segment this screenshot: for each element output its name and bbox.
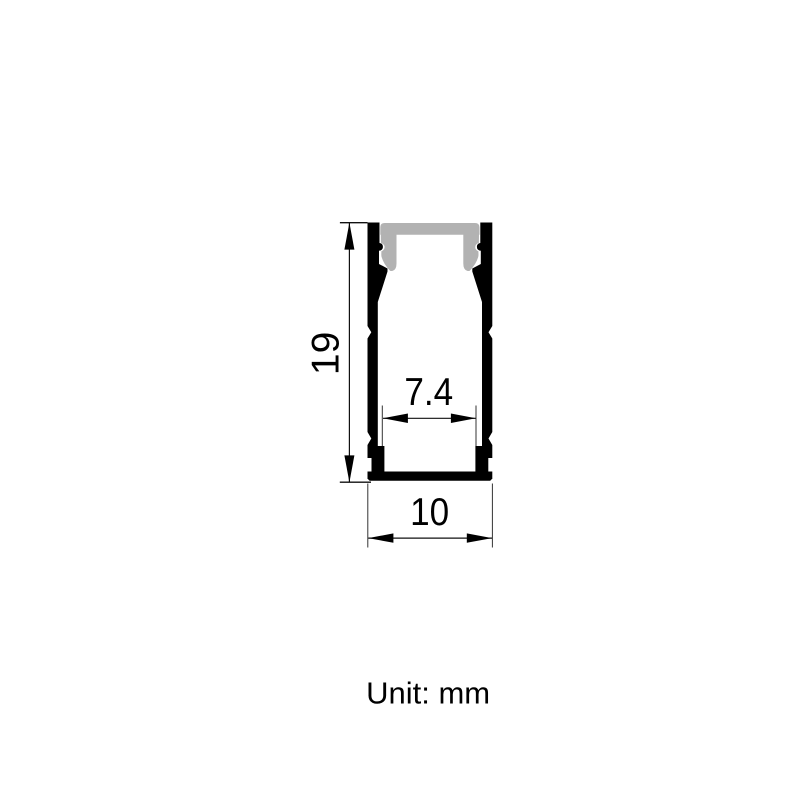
svg-text:Unit: mm: Unit: mm — [366, 676, 490, 711]
svg-text:7.4: 7.4 — [404, 369, 453, 413]
svg-text:19: 19 — [305, 332, 348, 375]
svg-text:10: 10 — [410, 489, 449, 533]
